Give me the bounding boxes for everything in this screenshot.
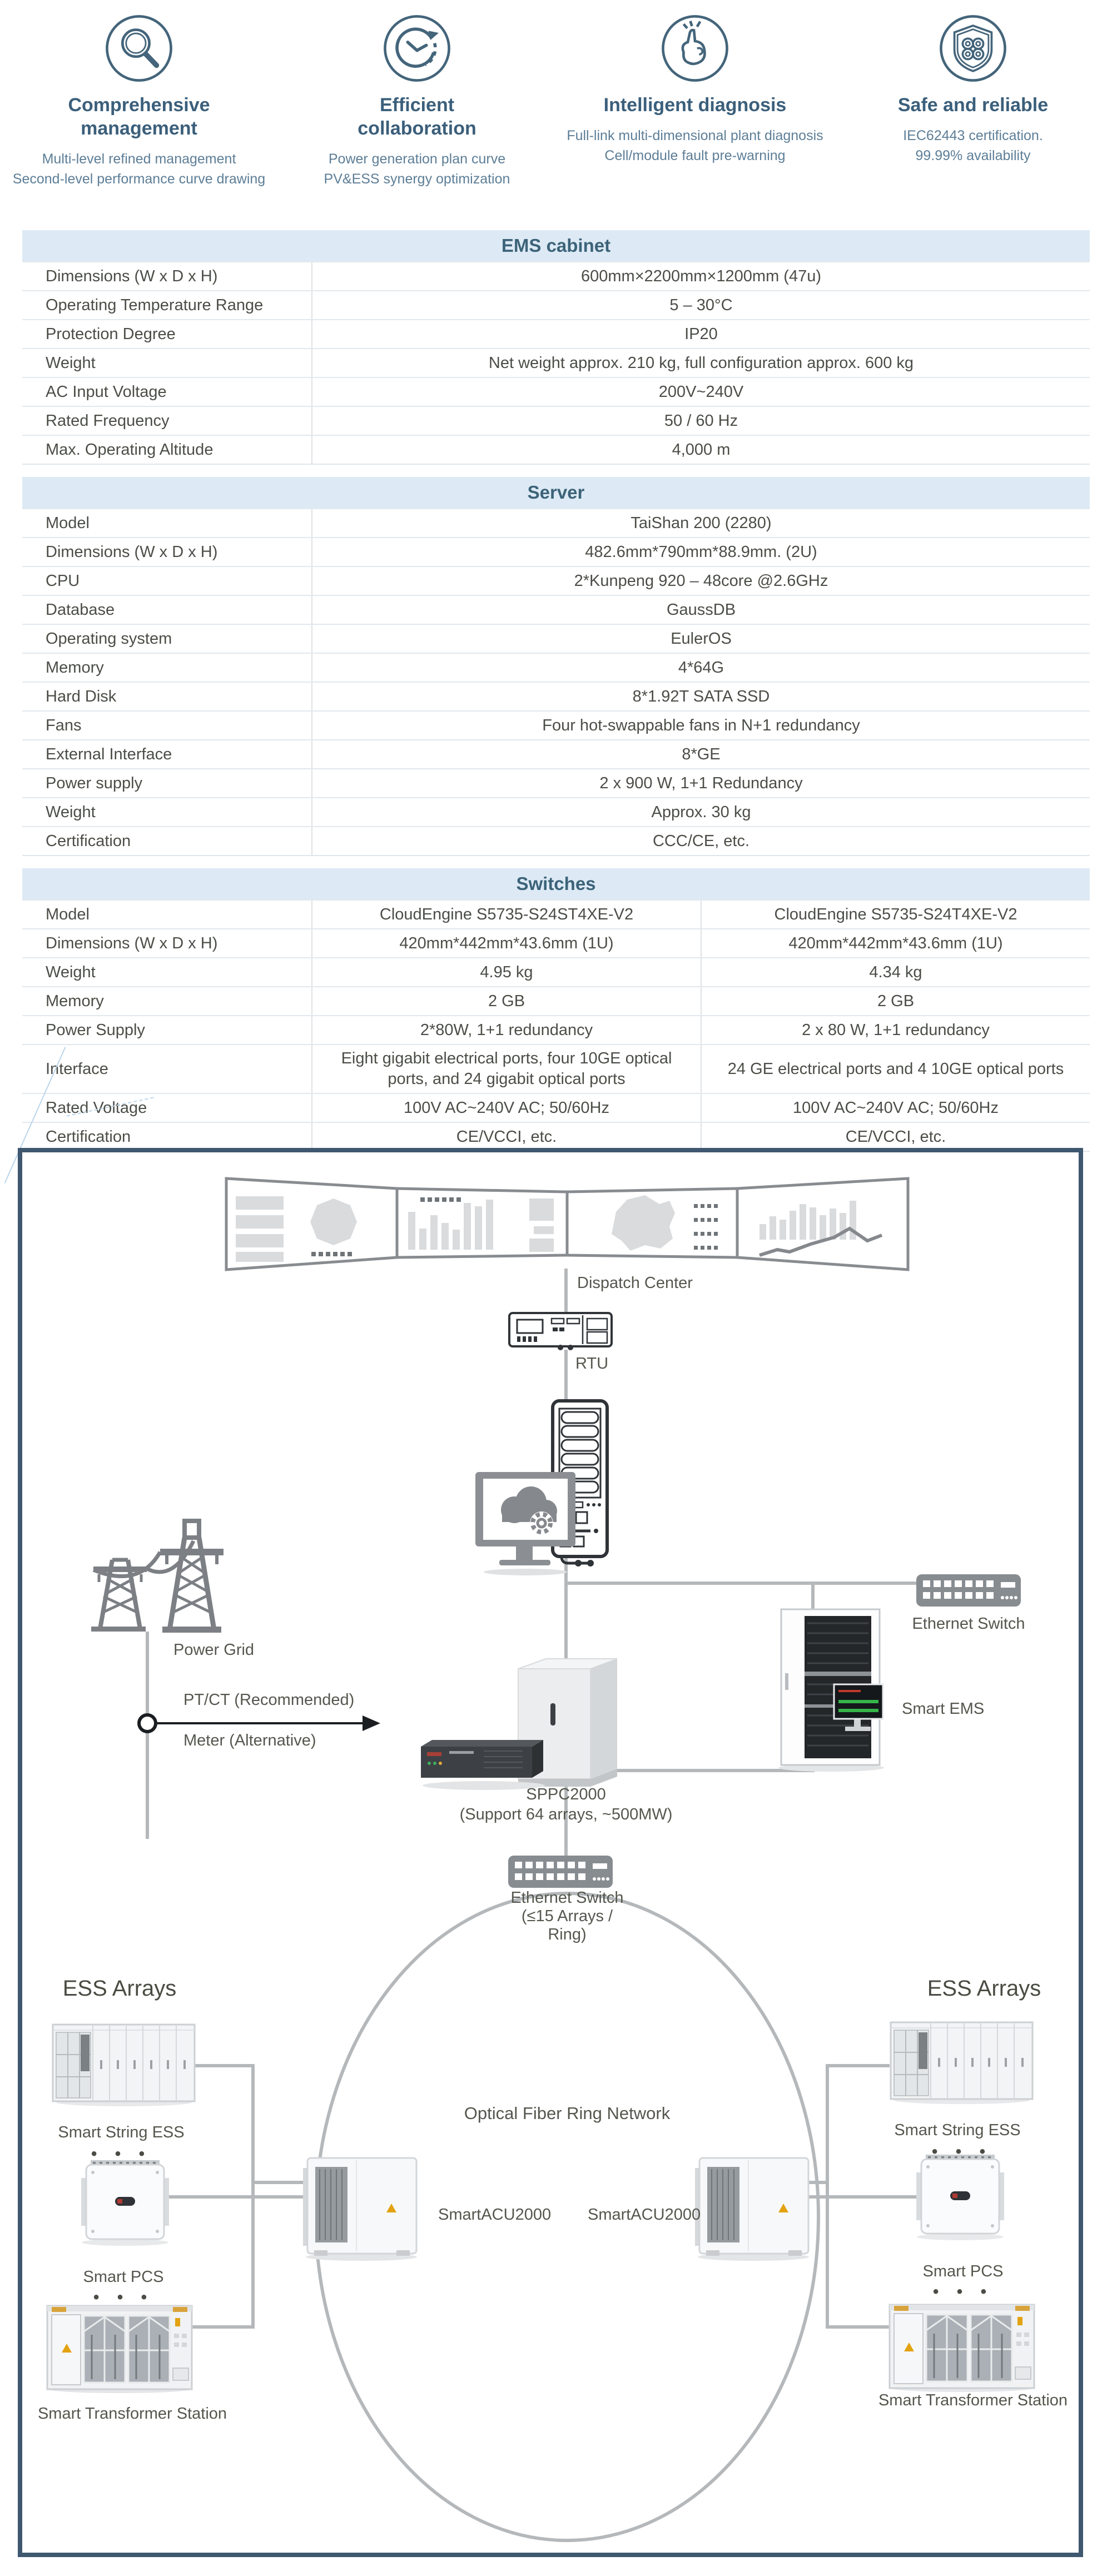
system-topology-diagram: Dispatch Center RTU Power Grid PT/CT (Re…: [18, 1148, 1083, 2557]
table-title: EMS cabinet: [22, 230, 1090, 261]
table-row: Rated Voltage100V AC~240V AC; 50/60Hz100…: [22, 1093, 1090, 1122]
table-row: Dimensions (W x D x H)482.6mm*790mm*88.9…: [22, 537, 1090, 566]
feature-title: Intelligent diagnosis: [603, 93, 787, 117]
feature-comprehensive-management: Comprehensive management Multi-level ref…: [0, 12, 278, 189]
row-label: Interface: [22, 1045, 311, 1093]
magnifier-icon: [103, 12, 175, 84]
table-row: Memory2 GB2 GB: [22, 986, 1090, 1015]
feature-title: Safe and reliable: [881, 93, 1065, 117]
table-row: Max. Operating Altitude4,000 m: [22, 435, 1090, 465]
row-value: 482.6mm*790mm*88.9mm. (2U): [311, 538, 1090, 566]
row-label: External Interface: [22, 740, 311, 768]
table-row: FansFour hot-swappable fans in N+1 redun…: [22, 710, 1090, 739]
dispatch-center-label: Dispatch Center: [577, 1274, 693, 1292]
table-row: External Interface8*GE: [22, 739, 1090, 768]
table-row: DatabaseGaussDB: [22, 595, 1090, 624]
row-label: Memory: [22, 987, 311, 1015]
table-row: AC Input Voltage200V~240V: [22, 377, 1090, 406]
smart-string-ess-label: Smart String ESS: [58, 2124, 184, 2142]
row-value: IP20: [311, 320, 1090, 348]
table-title: Switches: [22, 868, 1090, 899]
sppc2000-label: SPPC2000: [526, 1786, 606, 1804]
row-label: Protection Degree: [22, 320, 311, 348]
row-label: Weight: [22, 958, 311, 986]
ellipsis-dots: • • •: [933, 2282, 993, 2301]
smart-transformer-station-icon: [890, 2305, 1034, 2392]
row-value: 4*64G: [311, 654, 1090, 682]
row-label: Certification: [22, 1123, 311, 1151]
row-label: Power supply: [22, 769, 311, 797]
smart-transformer-station-icon: [47, 2306, 192, 2393]
row-label: Weight: [22, 798, 311, 826]
smart-string-ess-icon: [53, 2025, 195, 2106]
table-row: ModelCloudEngine S5735-S24ST4XE-V2CloudE…: [22, 899, 1090, 928]
row-value: CloudEngine S5735-S24T4XE-V2: [701, 901, 1090, 928]
power-grid-icon: [91, 1521, 224, 1633]
row-label: Database: [22, 596, 311, 624]
sppc2000-sub-label: (Support 64 arrays, ~500MW): [460, 1806, 673, 1824]
row-label: Model: [22, 509, 311, 537]
mid-switch-label: Ethernet Switch (≤15 Arrays / Ring): [510, 1889, 623, 1944]
row-label: Operating Temperature Range: [22, 291, 311, 319]
row-label: Max. Operating Altitude: [22, 436, 311, 464]
row-value: 2*Kunpeng 920 – 48core @2.6GHz: [311, 567, 1090, 595]
smart-acu2000-icon: [303, 2158, 417, 2261]
row-value: 5 – 30°C: [311, 291, 1090, 319]
feature-description: Power generation plan curve PV&ESS syner…: [278, 149, 556, 189]
table-row: Hard Disk8*1.92T SATA SSD: [22, 682, 1090, 710]
row-value: 2 GB: [701, 987, 1090, 1015]
row-label: Dimensions (W x D x H): [22, 538, 311, 566]
meter-label: Meter (Alternative): [183, 1732, 316, 1750]
feature-safe-reliable: Safe and reliable IEC62443 certification…: [834, 12, 1112, 189]
feature-description: IEC62443 certification. 99.99% availabil…: [834, 126, 1112, 166]
shield-icon: [937, 12, 1009, 84]
ethernet-switch-label: Ethernet Switch: [912, 1615, 1025, 1633]
power-grid-label: Power Grid: [173, 1641, 254, 1659]
row-label: Weight: [22, 349, 311, 377]
snap-finger-icon: [659, 12, 731, 84]
smart-string-ess-icon: [891, 2022, 1032, 2104]
spec-page: Comprehensive management Multi-level ref…: [0, 0, 1112, 2576]
row-value: 2 GB: [311, 987, 701, 1015]
smart-ems-label: Smart EMS: [902, 1700, 984, 1718]
table-row: ModelTaiShan 200 (2280): [22, 508, 1090, 537]
row-label: Dimensions (W x D x H): [22, 262, 311, 290]
table-row: WeightNet weight approx. 210 kg, full co…: [22, 348, 1090, 377]
table-row: CertificationCE/VCCI, etc.CE/VCCI, etc.: [22, 1122, 1090, 1152]
row-value: 2 x 80 W, 1+1 redundancy: [701, 1016, 1090, 1044]
cycle-clock-icon: [381, 12, 453, 84]
mid-switch-line1: Ethernet Switch: [510, 1889, 623, 1907]
table-row: Power supply2 x 900 W, 1+1 Redundancy: [22, 768, 1090, 797]
ptct-label: PT/CT (Recommended): [183, 1691, 354, 1709]
table-row: WeightApprox. 30 kg: [22, 797, 1090, 826]
smart-acu2000-label: SmartACU2000: [438, 2206, 551, 2224]
feature-title: Efficient collaboration: [325, 93, 509, 140]
smart-acu2000-icon: [695, 2158, 809, 2261]
row-value: Net weight approx. 210 kg, full configur…: [311, 349, 1090, 377]
smart-transformer-station-label: Smart Transformer Station: [38, 2405, 227, 2423]
rtu-label: RTU: [575, 1355, 608, 1373]
ems-cabinet-table: EMS cabinet Dimensions (W x D x H)600mm×…: [22, 230, 1090, 465]
switches-table: Switches ModelCloudEngine S5735-S24ST4XE…: [22, 868, 1090, 1152]
smart-ems-rack-icon: [778, 1609, 884, 1772]
smart-pcs-icon: [81, 2160, 169, 2246]
row-label: Operating system: [22, 625, 311, 653]
smart-transformer-station-label: Smart Transformer Station: [878, 2391, 1068, 2410]
table-row: Dimensions (W x D x H)420mm*442mm*43.6mm…: [22, 928, 1090, 957]
row-label: Dimensions (W x D x H): [22, 929, 311, 957]
table-row: Operating Temperature Range5 – 30°C: [22, 290, 1090, 319]
table-row: InterfaceEight gigabit electrical ports,…: [22, 1044, 1090, 1093]
table-row: Operating systemEulerOS: [22, 624, 1090, 653]
row-value: 4,000 m: [311, 436, 1090, 464]
row-value: CloudEngine S5735-S24ST4XE-V2: [311, 901, 701, 928]
row-value: 200V~240V: [311, 378, 1090, 406]
table-row: Power Supply2*80W, 1+1 redundancy2 x 80 …: [22, 1015, 1090, 1044]
row-value: Four hot-swappable fans in N+1 redundanc…: [311, 712, 1090, 739]
row-value: 8*GE: [311, 740, 1090, 768]
server-table: Server ModelTaiShan 200 (2280)Dimensions…: [22, 477, 1090, 856]
ethernet-switch-icon: [508, 1856, 613, 1888]
smart-pcs-label: Smart PCS: [922, 2262, 1003, 2281]
table-row: Memory4*64G: [22, 653, 1090, 682]
smart-pcs-icon: [916, 2155, 1004, 2240]
feature-strip: Comprehensive management Multi-level ref…: [0, 12, 1112, 189]
ellipsis-dots: • • •: [91, 2145, 151, 2164]
row-value: 100V AC~240V AC; 50/60Hz: [311, 1094, 701, 1122]
smart-acu2000-label: SmartACU2000: [588, 2206, 701, 2224]
row-value: 100V AC~240V AC; 50/60Hz: [701, 1094, 1090, 1122]
row-label: Memory: [22, 654, 311, 682]
mid-switch-line2: (≤15 Arrays /: [510, 1907, 623, 1926]
rtu-icon: [509, 1313, 612, 1350]
row-value: 420mm*442mm*43.6mm (1U): [701, 929, 1090, 957]
row-label: Model: [22, 901, 311, 928]
row-label: AC Input Voltage: [22, 378, 311, 406]
mid-switch-line3: Ring): [510, 1926, 623, 1944]
row-value: GaussDB: [311, 596, 1090, 624]
feature-efficient-collaboration: Efficient collaboration Power generation…: [278, 12, 556, 189]
row-value: 2 x 900 W, 1+1 Redundancy: [311, 769, 1090, 797]
topology-canvas: [22, 1152, 1079, 2553]
row-value: TaiShan 200 (2280): [311, 509, 1090, 537]
row-value: EulerOS: [311, 625, 1090, 653]
row-value: CE/VCCI, etc.: [701, 1123, 1090, 1151]
feature-title: Comprehensive management: [47, 93, 231, 140]
row-value: 50 / 60 Hz: [311, 407, 1090, 435]
optical-ring-label: Optical Fiber Ring Network: [464, 2104, 670, 2122]
row-value: 600mm×2200mm×1200mm (47u): [311, 262, 1090, 290]
smart-string-ess-label: Smart String ESS: [894, 2121, 1020, 2140]
table-row: Weight4.95 kg4.34 kg: [22, 957, 1090, 986]
row-value: CE/VCCI, etc.: [311, 1123, 701, 1151]
row-label: Rated Voltage: [22, 1094, 311, 1122]
feature-intelligent-diagnosis: Intelligent diagnosis Full-link multi-di…: [556, 12, 834, 189]
ellipsis-dots: • • •: [93, 2288, 153, 2307]
table-title: Server: [22, 477, 1090, 508]
row-value: 8*1.92T SATA SSD: [311, 683, 1090, 710]
row-label: CPU: [22, 567, 311, 595]
row-label: Power Supply: [22, 1016, 311, 1044]
row-value: Approx. 30 kg: [311, 798, 1090, 826]
spec-tables: EMS cabinet Dimensions (W x D x H)600mm×…: [22, 230, 1090, 1164]
table-row: Protection DegreeIP20: [22, 319, 1090, 348]
row-value: 420mm*442mm*43.6mm (1U): [311, 929, 701, 957]
row-label: Fans: [22, 712, 311, 739]
feature-description: Full-link multi-dimensional plant diagno…: [556, 126, 834, 166]
cloud-monitor-icon: [475, 1472, 575, 1575]
row-label: Certification: [22, 827, 311, 855]
row-value: 4.95 kg: [311, 958, 701, 986]
row-value: 4.34 kg: [701, 958, 1090, 986]
row-value: 24 GE electrical ports and 4 10GE optica…: [701, 1045, 1090, 1093]
table-row: Rated Frequency50 / 60 Hz: [22, 406, 1090, 435]
table-row: CertificationCCC/CE, etc.: [22, 826, 1090, 856]
ellipsis-dots: • • •: [932, 2142, 992, 2161]
feature-description: Multi-level refined management Second-le…: [0, 149, 278, 189]
dispatch-video-wall-icon: [226, 1178, 908, 1270]
row-label: Hard Disk: [22, 683, 311, 710]
ess-arrays-label: ESS Arrays: [927, 1980, 1041, 1998]
meter-node-arrow: [139, 1715, 380, 1732]
row-value: 2*80W, 1+1 redundancy: [311, 1016, 701, 1044]
ethernet-switch-icon: [916, 1574, 1021, 1607]
sppc2000-rack-icon: [421, 1740, 545, 1790]
row-value: Eight gigabit electrical ports, four 10G…: [311, 1045, 701, 1093]
table-row: CPU2*Kunpeng 920 – 48core @2.6GHz: [22, 566, 1090, 595]
ess-arrays-label: ESS Arrays: [63, 1980, 177, 1998]
smart-pcs-label: Smart PCS: [83, 2268, 163, 2286]
row-label: Rated Frequency: [22, 407, 311, 435]
row-value: CCC/CE, etc.: [311, 827, 1090, 855]
table-row: Dimensions (W x D x H)600mm×2200mm×1200m…: [22, 261, 1090, 290]
